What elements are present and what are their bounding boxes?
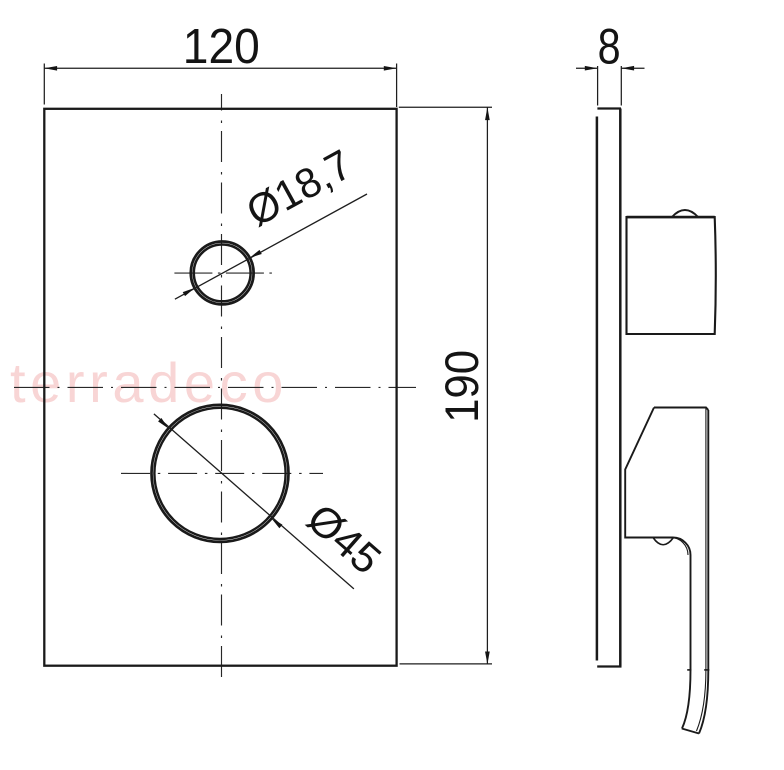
svg-text:190: 190	[435, 350, 488, 423]
svg-text:8: 8	[598, 19, 621, 75]
svg-text:terradeco: terradeco	[10, 351, 288, 414]
svg-text:120: 120	[183, 20, 260, 74]
